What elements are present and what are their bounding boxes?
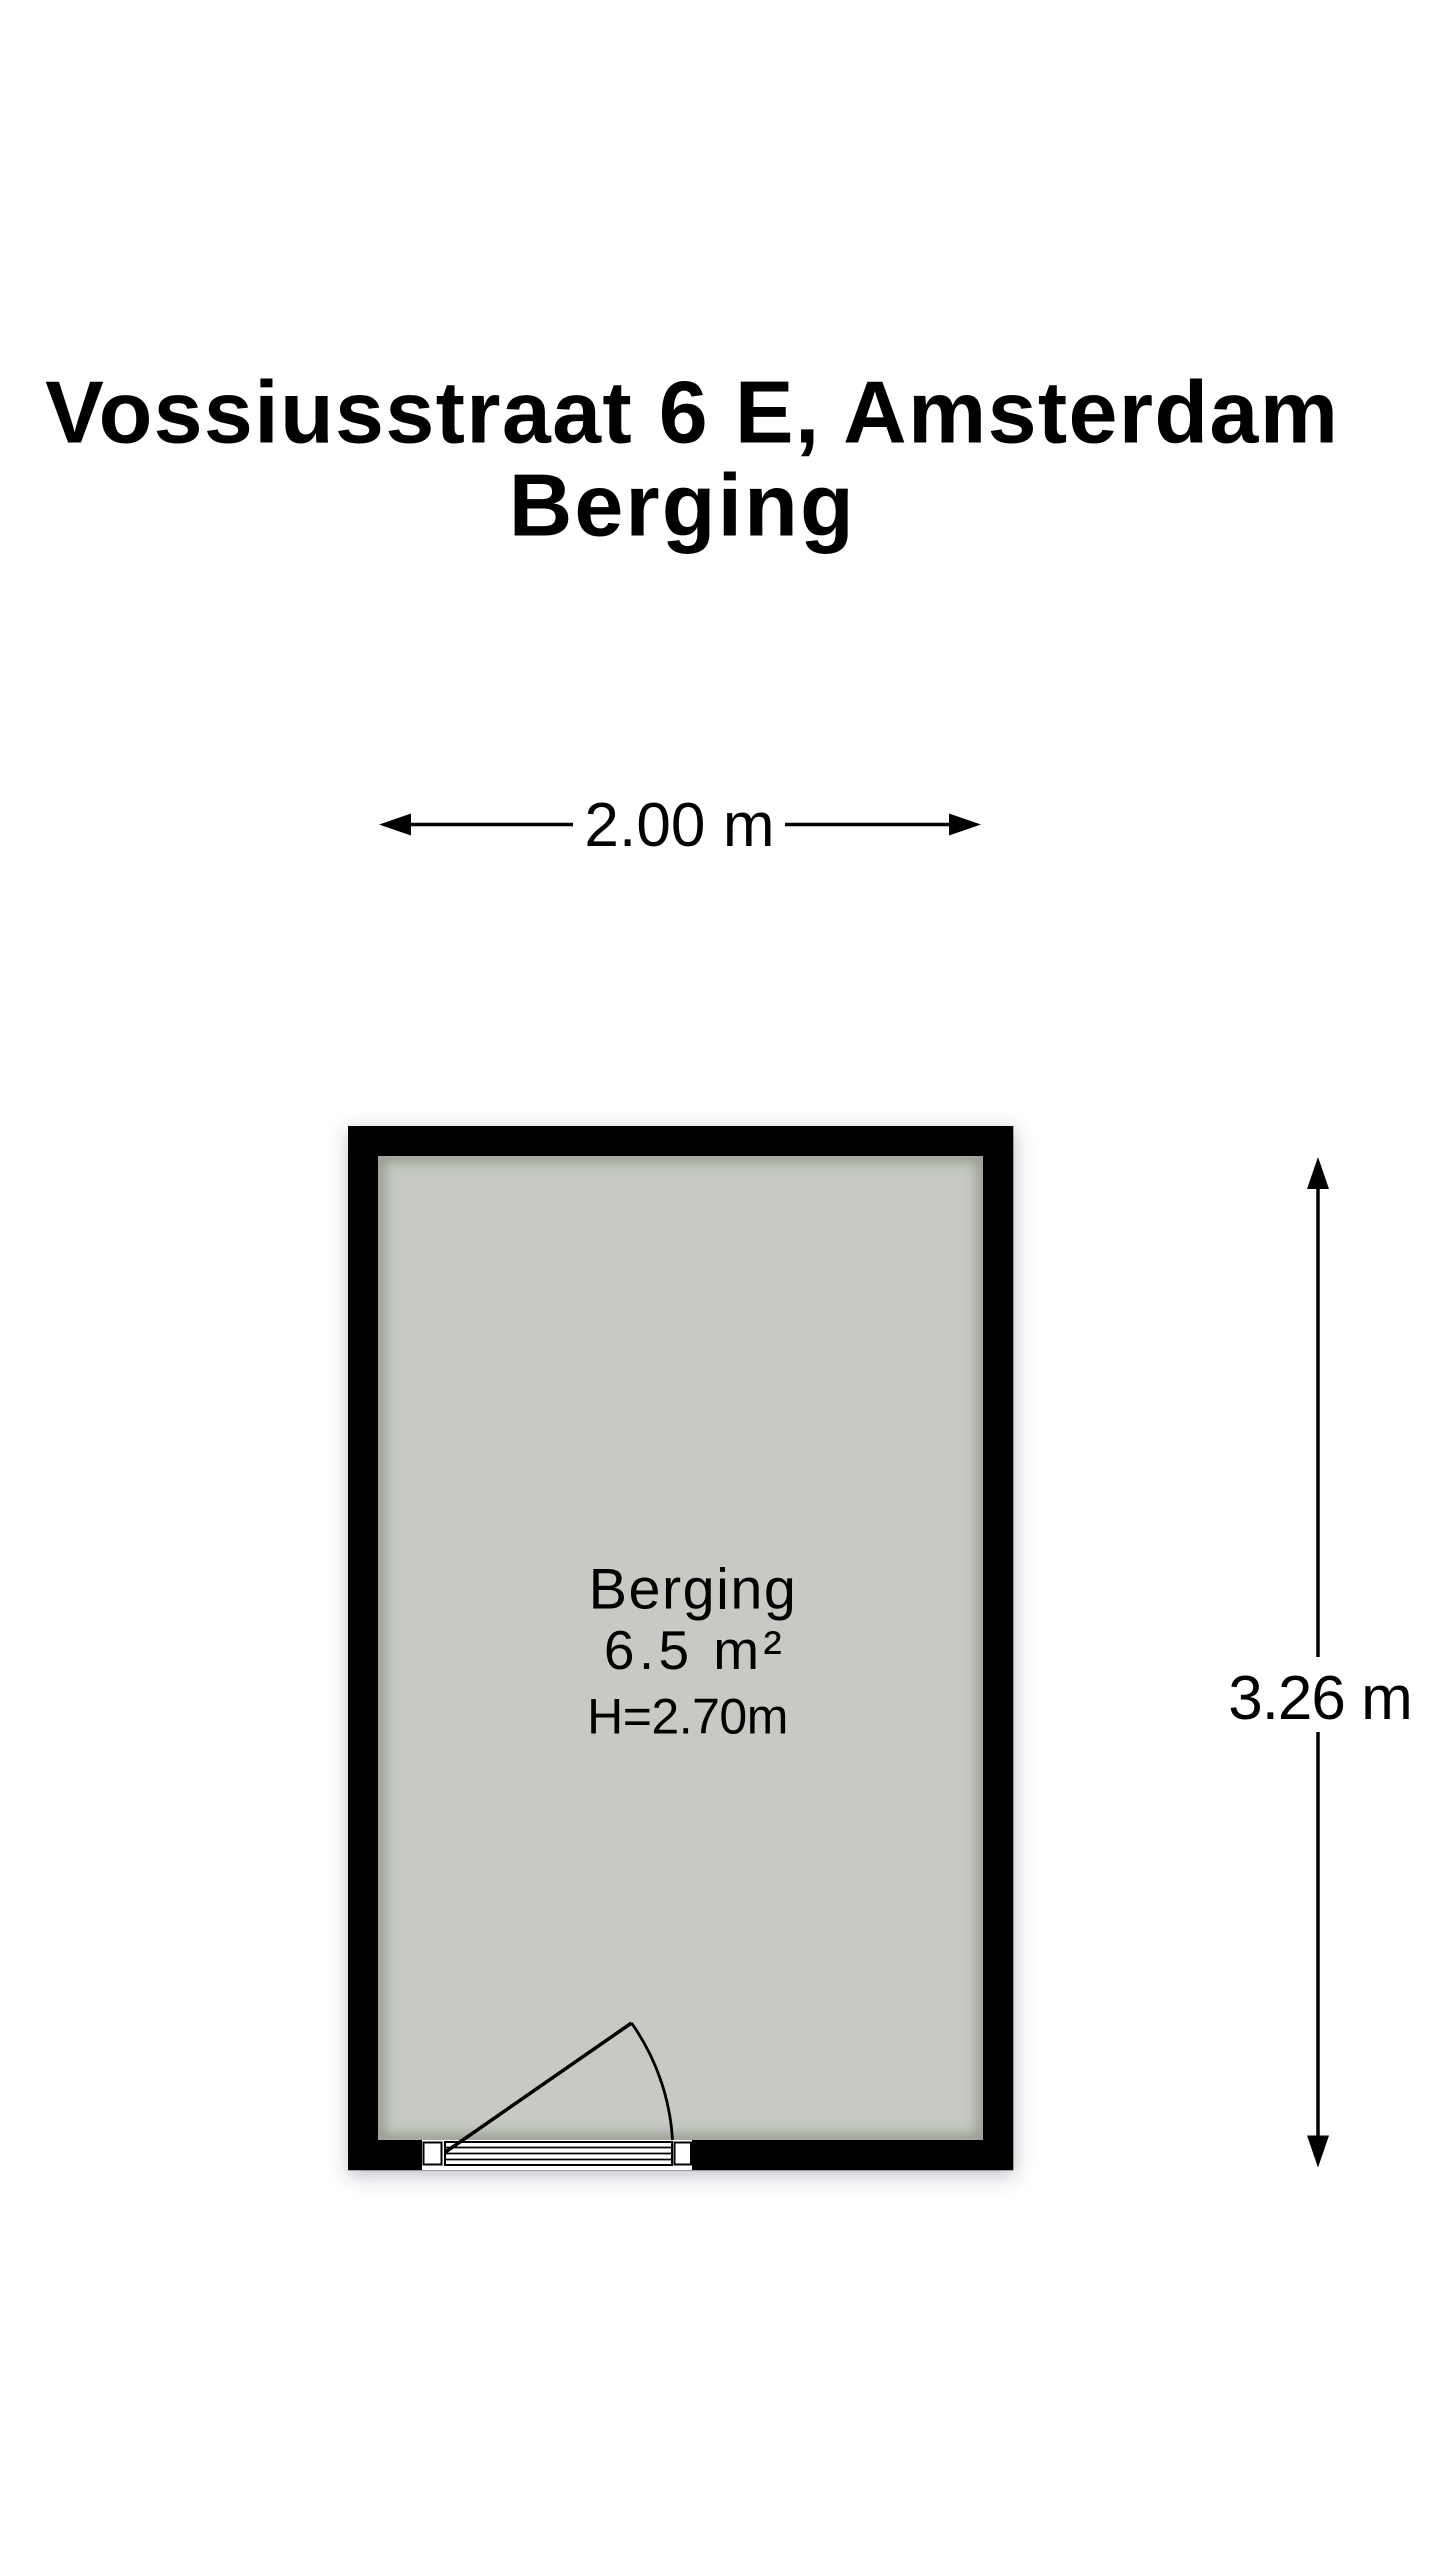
- svg-text:Berging: Berging: [509, 456, 856, 555]
- svg-text:Vossiusstraat 6 E, Amsterdam: Vossiusstraat 6 E, Amsterdam: [45, 363, 1339, 462]
- svg-text:H=2.70m: H=2.70m: [587, 1689, 788, 1745]
- svg-text:6.5 m²: 6.5 m²: [604, 1619, 786, 1681]
- svg-text:Berging: Berging: [589, 1557, 798, 1621]
- svg-text:2.00 m: 2.00 m: [584, 791, 774, 860]
- svg-text:3.26 m: 3.26 m: [1228, 1664, 1412, 1733]
